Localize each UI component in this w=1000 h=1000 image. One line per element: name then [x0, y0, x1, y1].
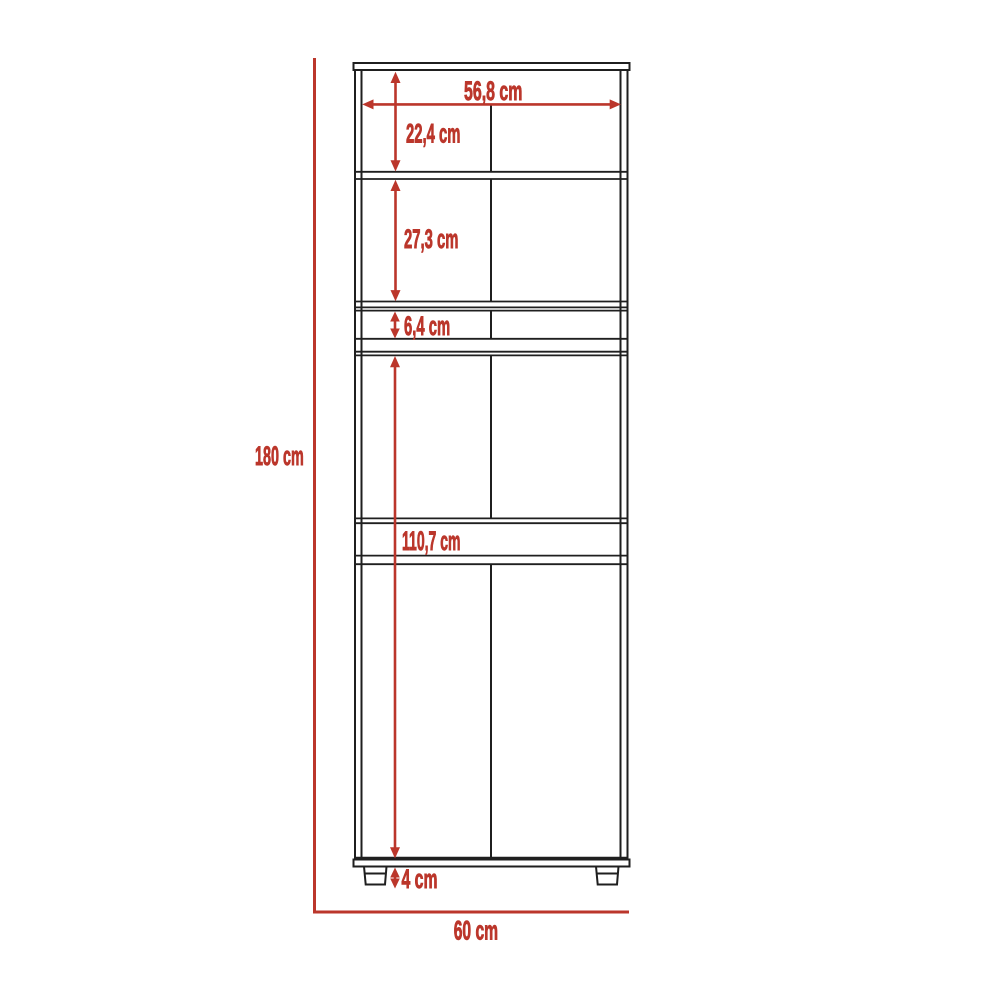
svg-text:60 cm: 60 cm — [454, 915, 498, 946]
svg-text:110,7 cm: 110,7 cm — [402, 526, 461, 556]
svg-text:27,3 cm: 27,3 cm — [404, 223, 458, 254]
svg-text:4 cm: 4 cm — [402, 864, 438, 895]
svg-text:6,4 cm: 6,4 cm — [404, 310, 450, 341]
svg-text:56,8 cm: 56,8 cm — [464, 75, 522, 105]
svg-text:22,4 cm: 22,4 cm — [406, 118, 460, 149]
svg-text:180 cm: 180 cm — [255, 440, 304, 471]
